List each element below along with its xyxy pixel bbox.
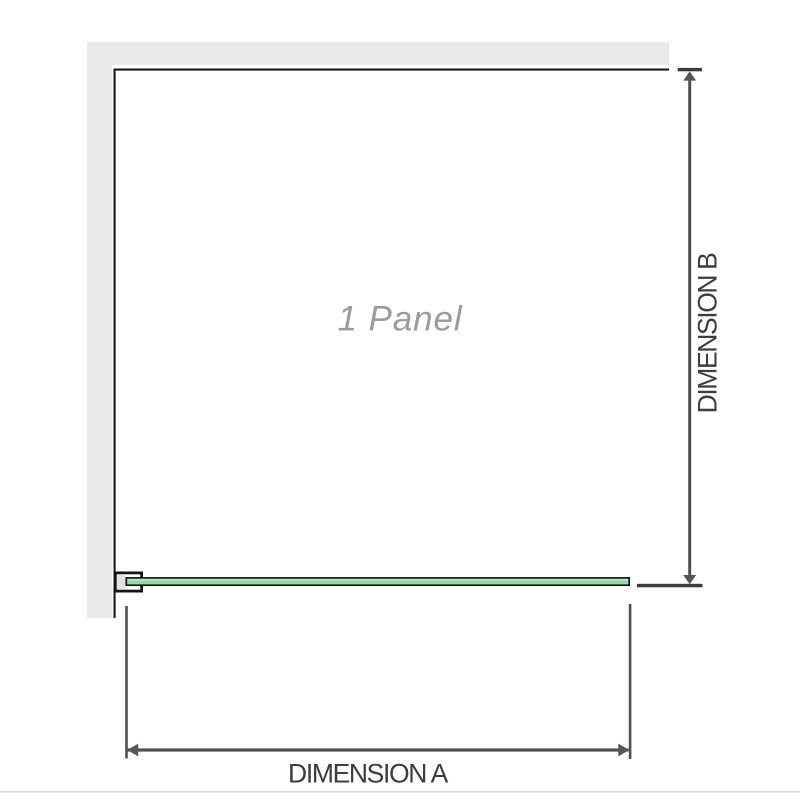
svg-text:DIMENSION A: DIMENSION A	[288, 759, 449, 789]
svg-text:DIMENSION B: DIMENSION B	[693, 253, 723, 414]
svg-text:1 Panel: 1 Panel	[337, 300, 462, 339]
